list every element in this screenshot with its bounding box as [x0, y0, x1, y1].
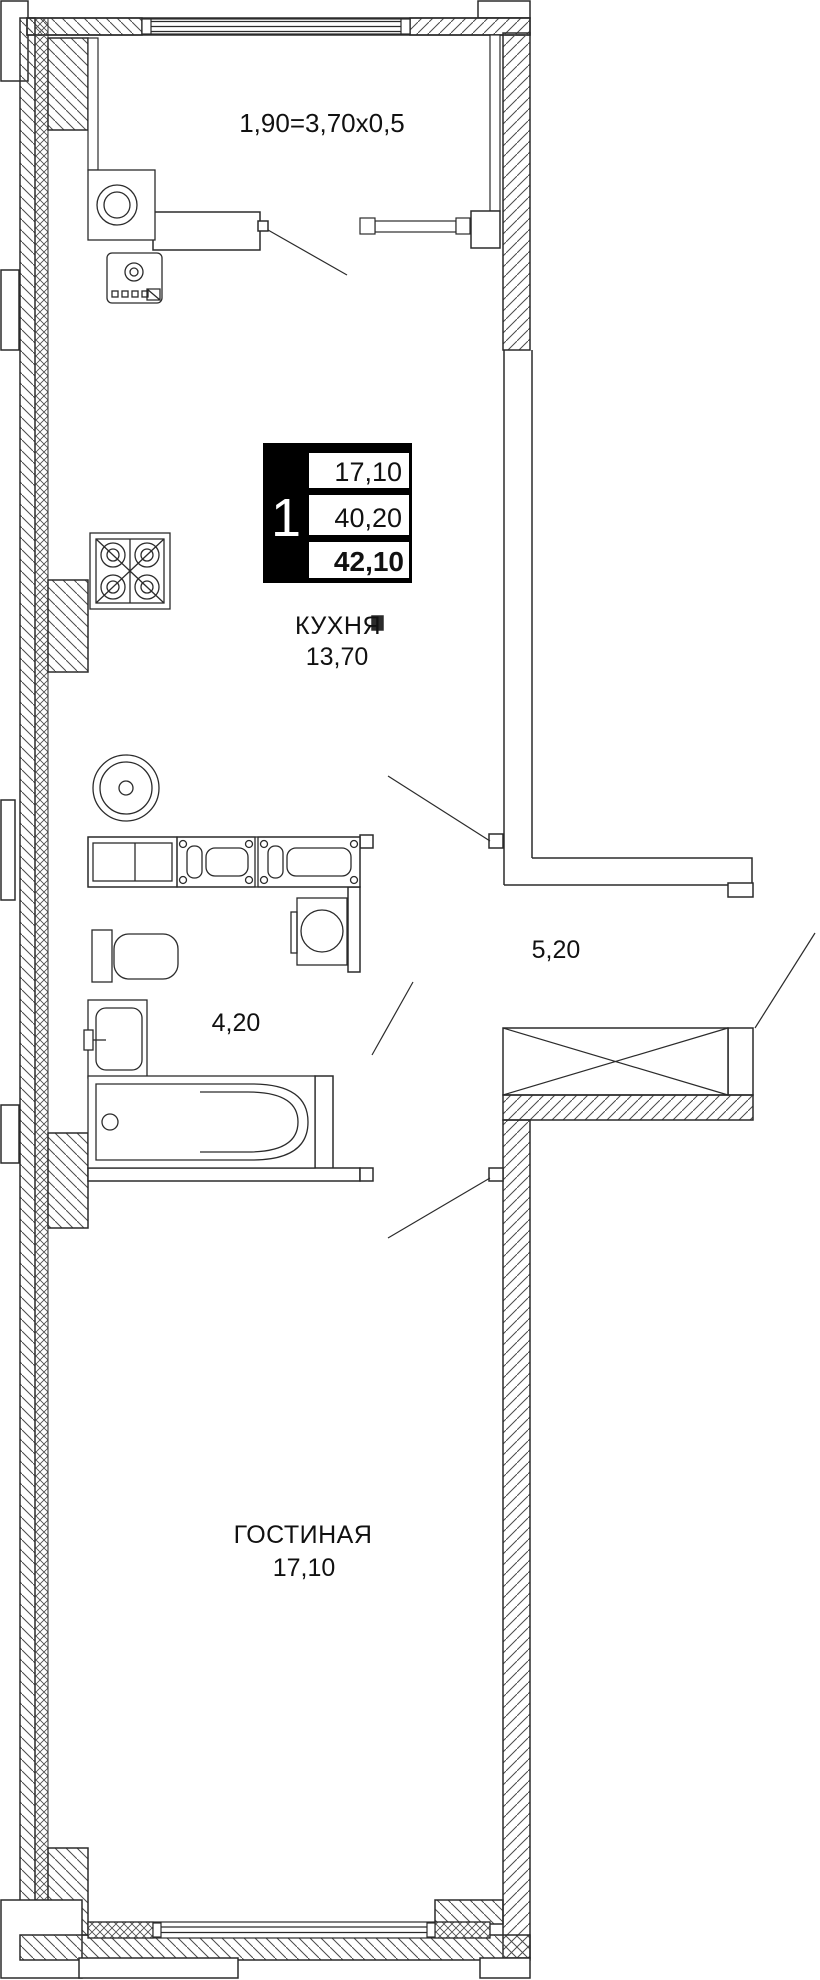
balcony-formula: 1,90=3,70x0,5	[239, 108, 405, 138]
living-room-label: ГОСТИНАЯ	[234, 1521, 373, 1549]
wall-pier	[48, 580, 88, 672]
wall-corridor-top	[532, 858, 752, 883]
living-area-value: 17,10	[334, 457, 402, 487]
wall-right-upper	[503, 33, 530, 350]
cabinet-row	[88, 837, 360, 887]
total-area-value: 42,10	[334, 546, 404, 577]
door-jamb	[728, 883, 753, 897]
wall-bathroom-tub	[315, 1076, 333, 1180]
kitchen-door-swing	[388, 776, 490, 841]
kitchen-sink-unit	[88, 170, 155, 240]
wall-bottom	[20, 1935, 530, 1960]
unit-number: 1	[271, 488, 301, 548]
balcony-sill-pier	[471, 211, 500, 248]
wall-left-insulation	[35, 18, 48, 1946]
interior-walls	[88, 35, 815, 1238]
wall-bathroom-right	[348, 887, 360, 972]
info-box: 1 17,10 40,20 42,10	[263, 443, 412, 583]
radiator	[360, 218, 470, 234]
balcony-glazing-left	[88, 38, 98, 170]
balcony-counter	[153, 212, 260, 250]
balcony-glazing-right	[490, 35, 500, 211]
living-door-swing	[388, 1178, 490, 1238]
wall-block-left	[1, 1105, 19, 1163]
area-no-balcony-value: 40,20	[334, 503, 402, 533]
balcony-door-swing	[268, 230, 347, 275]
washing-machine	[291, 898, 347, 965]
round-table	[93, 755, 159, 821]
wall-tab-bottom	[79, 1958, 238, 1978]
shaft-box	[503, 1028, 728, 1095]
toilet	[92, 930, 178, 982]
entrance-door-swing	[755, 933, 815, 1028]
wall-pier	[48, 38, 88, 130]
hallway-area: 5,20	[532, 936, 581, 964]
wall-block-left	[1, 270, 19, 350]
outer-walls	[1, 1, 530, 1978]
stove	[90, 533, 170, 609]
door-jamb	[489, 1168, 503, 1181]
bathroom-door-swing	[372, 982, 413, 1055]
wall-hatched-entry	[503, 1095, 753, 1120]
door-jamb	[258, 221, 268, 231]
bathroom-area: 4,20	[212, 1009, 261, 1037]
door-jamb	[360, 835, 373, 848]
wall-bathroom-bottom	[88, 1168, 360, 1181]
living-room-area: 17,10	[273, 1554, 336, 1582]
door-jamb	[489, 834, 503, 848]
oven	[107, 253, 162, 303]
kitchen-area: 13,70	[306, 643, 369, 671]
wall-block-left	[1, 800, 15, 900]
door-jamb	[728, 1028, 753, 1095]
door-jamb	[360, 1168, 373, 1181]
floorplan-canvas: 1 17,10 40,20 42,10 1,90=3,70x0,5 КУХНЯ …	[0, 0, 820, 1980]
wall-left-outer	[20, 18, 35, 1958]
wash-basin	[84, 1000, 147, 1078]
wall-pier	[48, 1133, 88, 1228]
window-bottom	[88, 1922, 490, 1938]
wall-block-top-right	[478, 1, 530, 18]
wall-tab-bottom	[480, 1958, 530, 1978]
wall-pier	[435, 1900, 503, 1924]
bathtub	[88, 1076, 315, 1168]
floorplan-drawing: 1 17,10 40,20 42,10 1,90=3,70x0,5 КУХНЯ …	[0, 0, 820, 1980]
kitchen-label: КУХНЯ	[295, 612, 381, 640]
window-top	[142, 19, 410, 34]
wall-right-lower	[503, 1120, 530, 1958]
